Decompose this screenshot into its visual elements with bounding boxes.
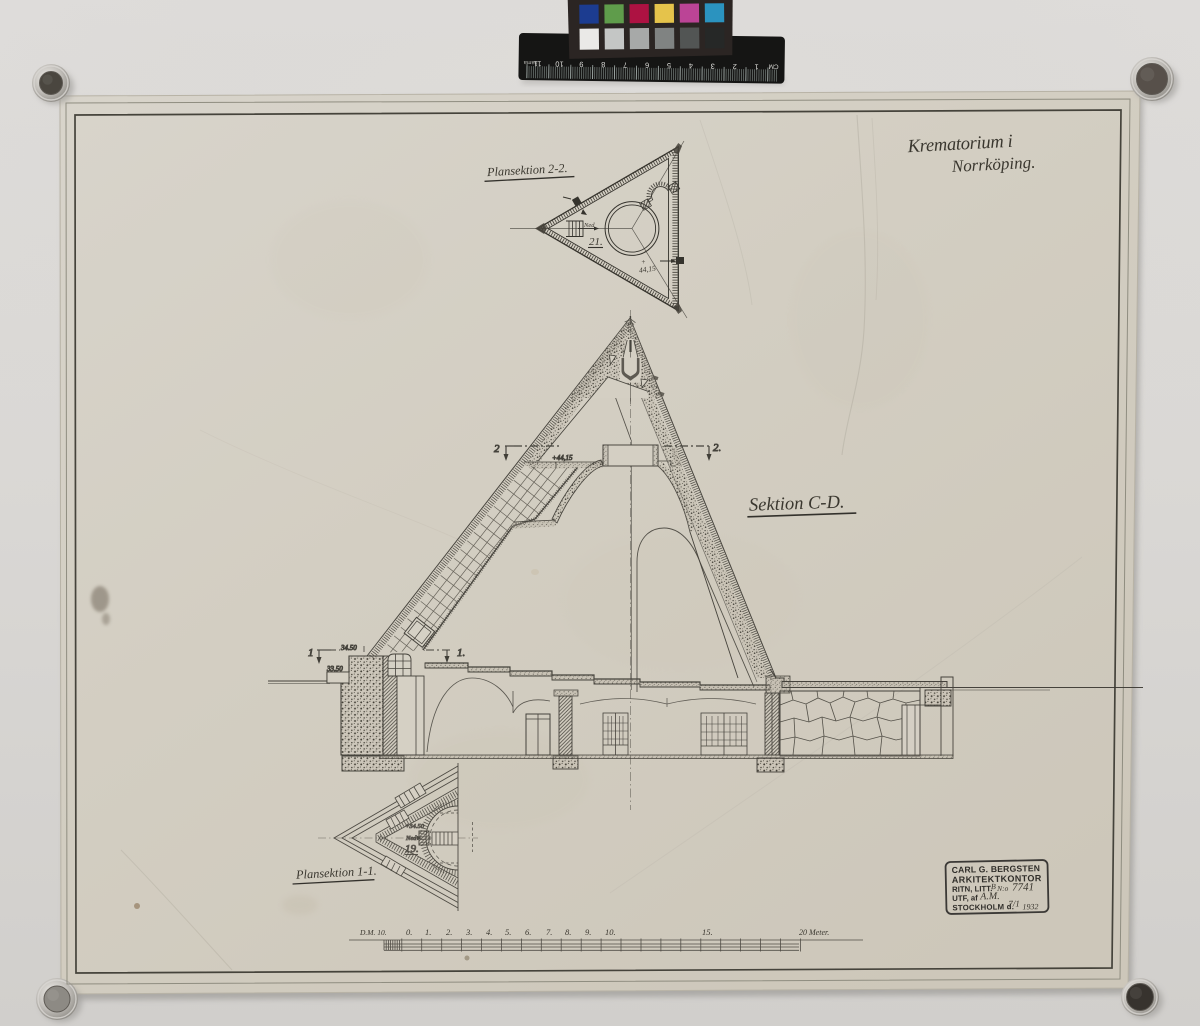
svg-text:STOCKHOLM d.: STOCKHOLM d. (952, 902, 1014, 912)
svg-text:10.: 10. (605, 927, 616, 937)
svg-text:5.: 5. (505, 927, 511, 937)
svg-text:hama: hama (523, 59, 538, 65)
svg-text:2: 2 (733, 62, 737, 71)
svg-text:CM: CM (768, 62, 778, 69)
svg-text:15.: 15. (702, 927, 713, 937)
svg-text:+44,15: +44,15 (552, 454, 573, 462)
svg-text:1932: 1932 (1022, 902, 1038, 911)
svg-text:5: 5 (667, 61, 671, 70)
svg-text:2: 2 (494, 443, 500, 455)
svg-text:20 Meter.: 20 Meter. (799, 928, 829, 937)
svg-text:4: 4 (689, 61, 693, 70)
svg-text:3: 3 (711, 62, 715, 71)
svg-text:A.M.: A.M. (979, 891, 1000, 902)
svg-text:0.: 0. (406, 927, 412, 937)
svg-text:19.: 19. (405, 843, 419, 855)
svg-text:1.: 1. (457, 647, 465, 659)
svg-text:2.: 2. (713, 442, 721, 454)
svg-text:6: 6 (645, 61, 649, 70)
svg-text:8: 8 (601, 60, 605, 69)
svg-text:34.50: 34.50 (340, 644, 357, 652)
svg-text:B: B (991, 882, 996, 891)
svg-text:Sektion C-D.: Sektion C-D. (749, 492, 845, 515)
svg-text:1.: 1. (425, 927, 431, 937)
svg-text:10: 10 (555, 59, 563, 68)
svg-text:8.: 8. (565, 927, 571, 937)
svg-text:9: 9 (579, 60, 583, 69)
svg-text:9.: 9. (585, 927, 591, 937)
svg-text:7.: 7. (546, 927, 552, 937)
svg-text:7741: 7741 (1012, 881, 1034, 893)
svg-text:7: 7 (623, 60, 627, 69)
svg-text:Ned: Ned (583, 222, 595, 229)
svg-text:Ned: Ned (405, 835, 417, 842)
svg-text:3.: 3. (465, 927, 472, 937)
svg-text:+34.50: +34.50 (405, 823, 425, 830)
svg-text:UTF, af: UTF, af (952, 893, 978, 903)
svg-text:7/1: 7/1 (1008, 899, 1020, 909)
svg-text:D.M. 10.: D.M. 10. (359, 928, 387, 937)
svg-text:6.: 6. (525, 927, 531, 937)
svg-text:2.: 2. (446, 927, 452, 937)
svg-text:4.: 4. (486, 927, 492, 937)
svg-text:1: 1 (754, 62, 758, 71)
svg-text:1: 1 (308, 647, 314, 659)
svg-text:21.: 21. (589, 236, 603, 248)
